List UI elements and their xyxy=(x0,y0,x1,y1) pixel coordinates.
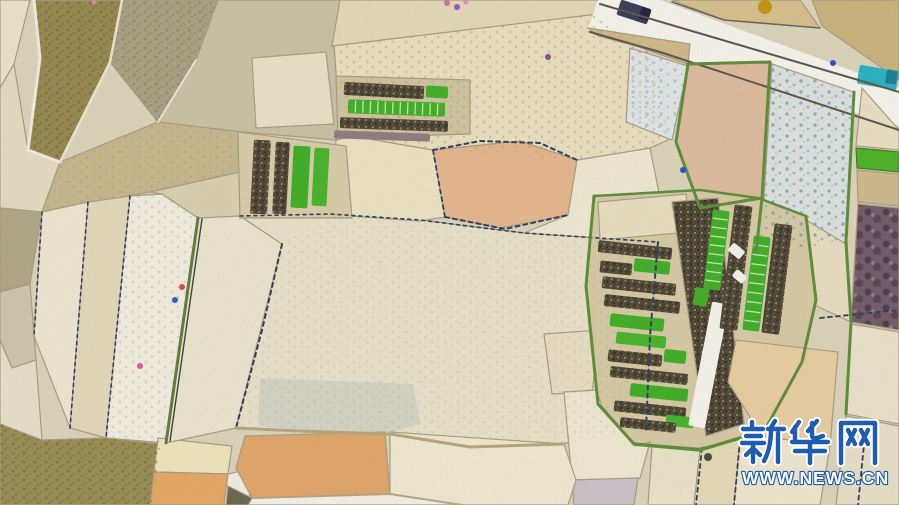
aerial-photo-canvas: WWW.NEWS.CN xyxy=(0,0,899,505)
aerial-photo: 新华网 xyxy=(0,0,899,505)
watermark-url-text: WWW.NEWS.CN xyxy=(742,468,889,488)
